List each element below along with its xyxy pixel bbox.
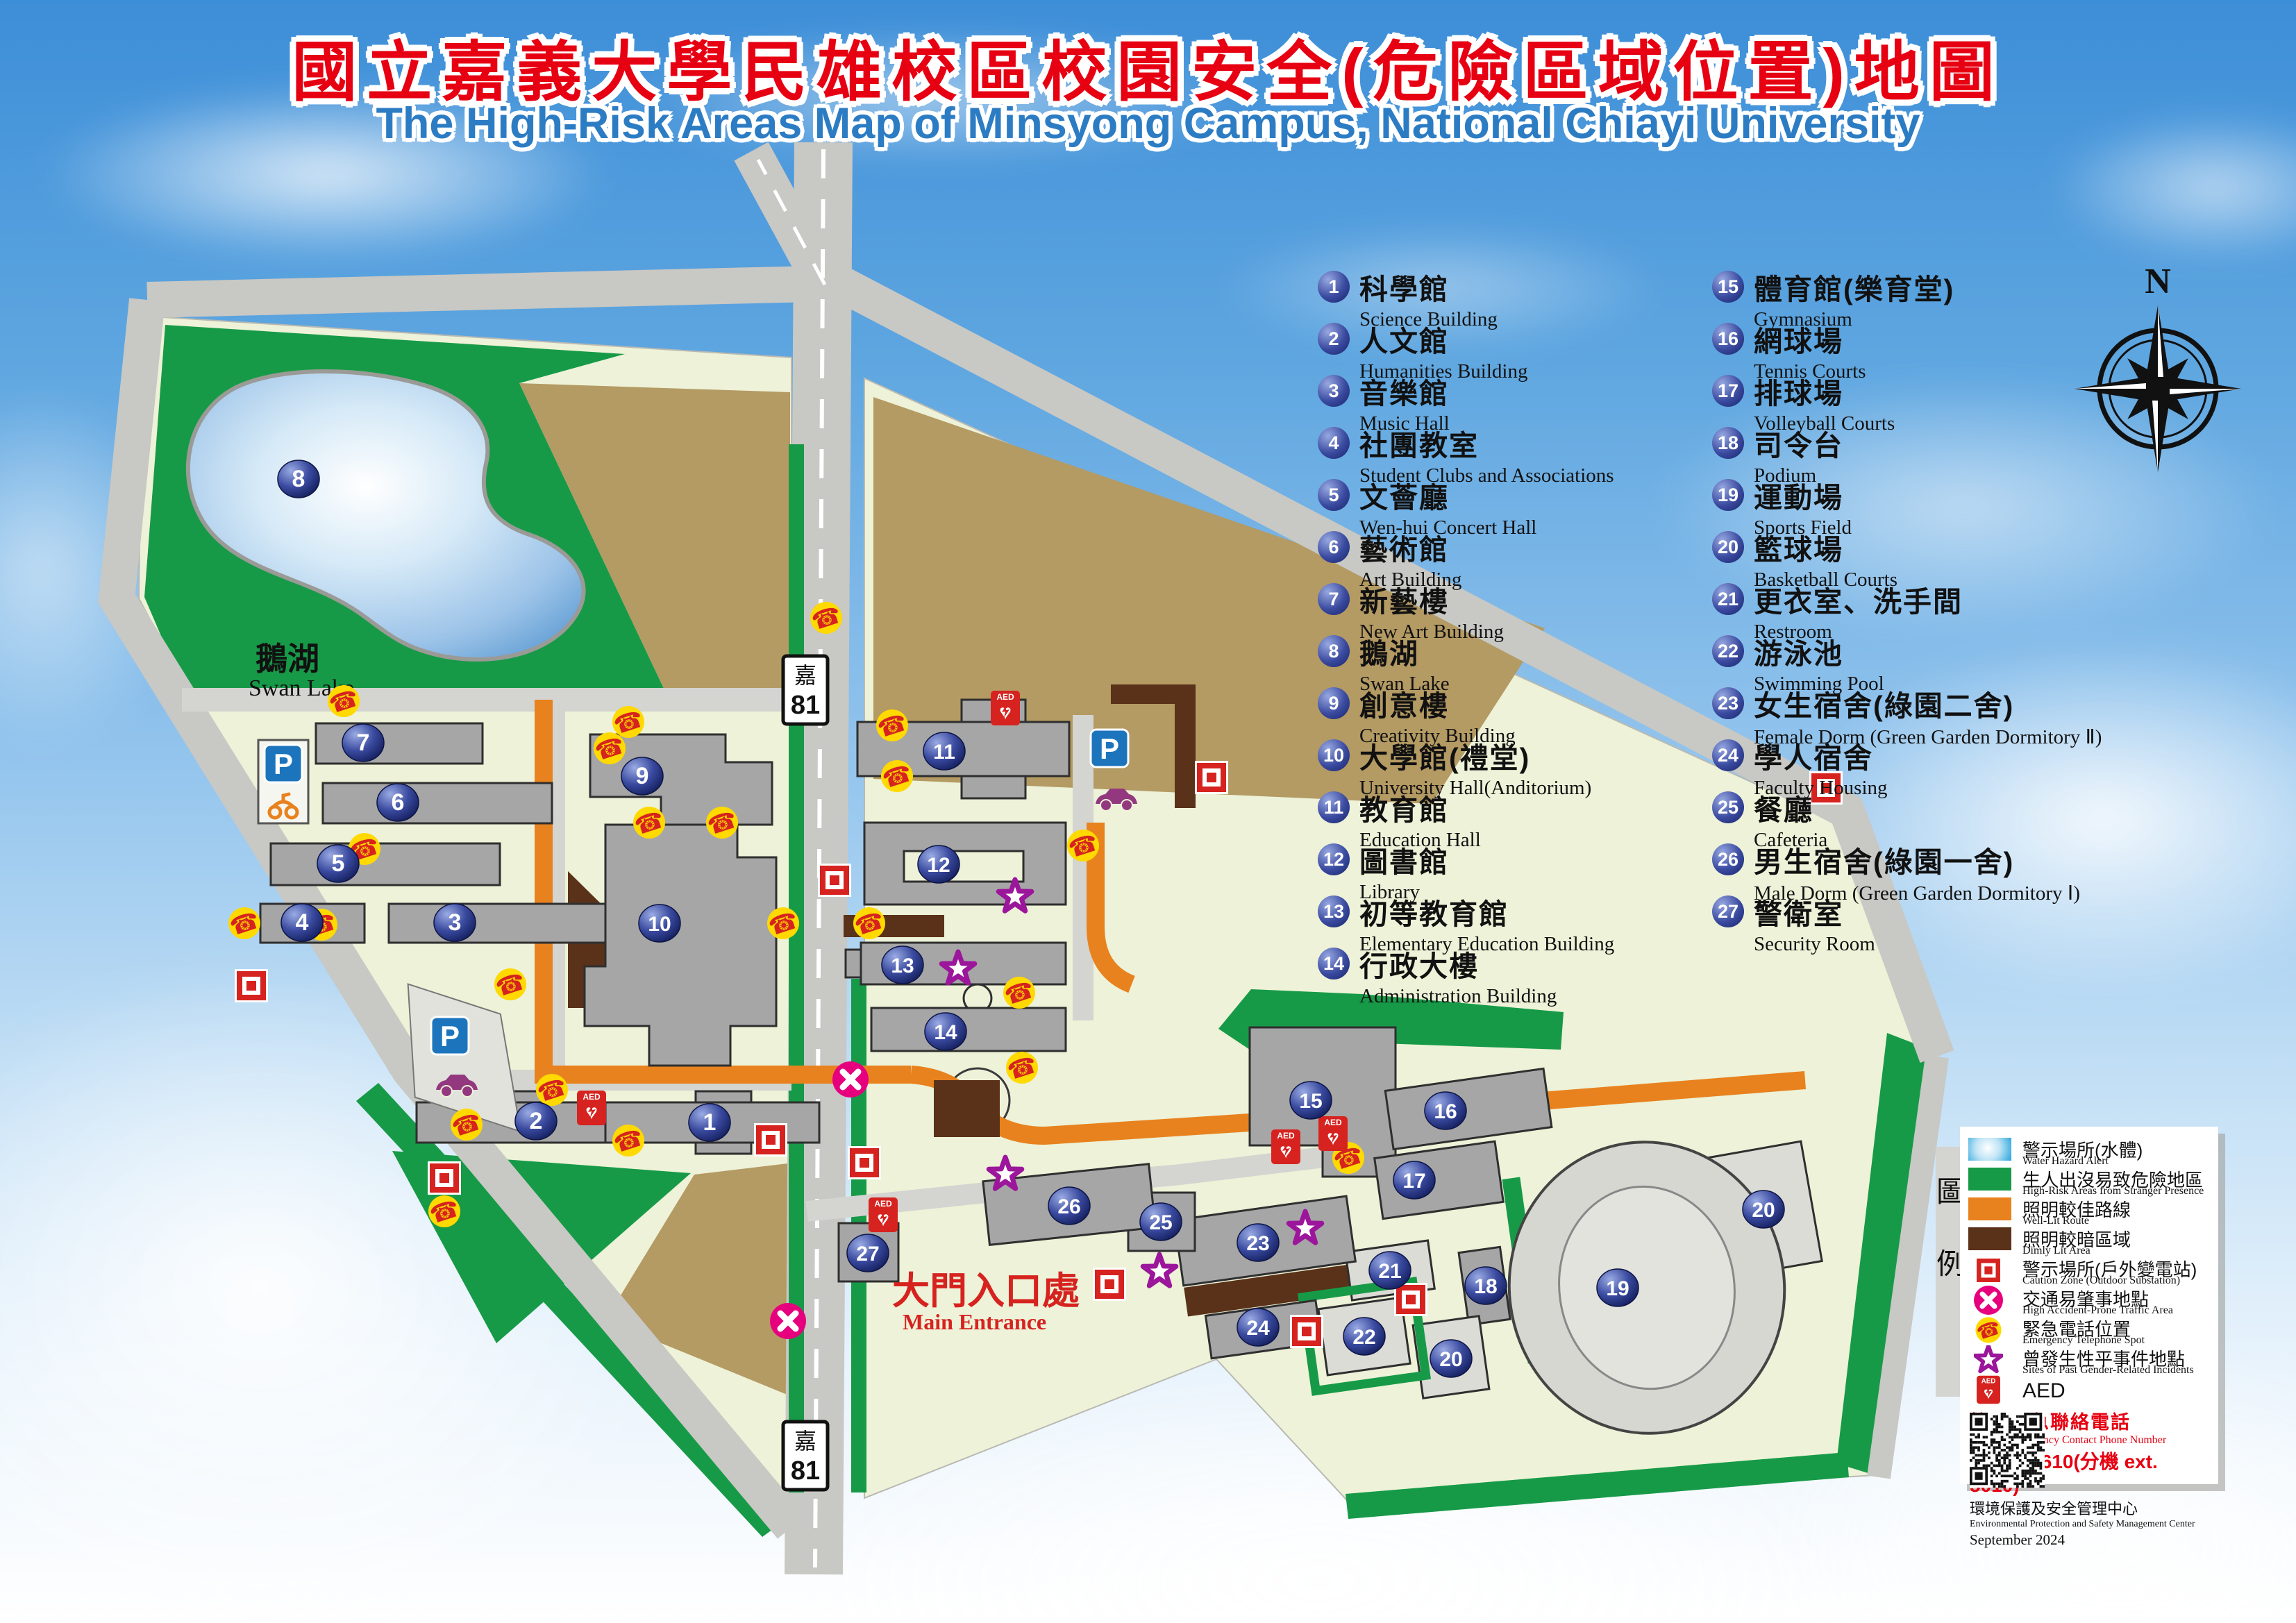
svg-text:4: 4	[296, 909, 309, 936]
main-entrance-label-zh: 大門入口處	[892, 1270, 1080, 1312]
list-number-badge: 3	[1318, 375, 1350, 407]
building-name-zh: 創意樓	[1359, 690, 1449, 722]
svg-text:2: 2	[530, 1108, 543, 1134]
building-name-zh: 大學館(禮堂)	[1359, 742, 1530, 774]
aed-icon: AED♥	[1318, 1116, 1348, 1151]
list-number-badge: 27	[1712, 895, 1744, 927]
svg-text:16: 16	[1434, 1100, 1457, 1123]
map-badge-21: 21	[1369, 1252, 1411, 1289]
svg-text:23: 23	[1246, 1232, 1269, 1255]
substation-icon	[1195, 761, 1228, 794]
building-name-zh: 藝術館	[1359, 534, 1449, 566]
svg-text:AED: AED	[874, 1199, 892, 1209]
parking-sign-icon: P	[1091, 730, 1128, 767]
svg-text:14: 14	[934, 1021, 957, 1044]
building-name-zh: 社團教室	[1359, 430, 1479, 462]
list-number-badge: 5	[1318, 479, 1350, 511]
list-number-badge: 7	[1318, 583, 1350, 615]
map-badge-18: 18	[1465, 1267, 1507, 1304]
aed-icon: AED♥	[1271, 1129, 1300, 1164]
building-name-zh: 新藝樓	[1359, 586, 1449, 618]
map-badge-27: 27	[847, 1234, 889, 1272]
svg-text:12: 12	[927, 854, 950, 877]
svg-text:P: P	[274, 748, 293, 780]
aed-icon: AED♥	[577, 1091, 606, 1125]
green-swatch-icon	[1968, 1168, 2011, 1191]
map-badge-4: 4	[281, 904, 323, 941]
building-name-zh: 警衛室	[1754, 898, 1843, 930]
svg-text:19: 19	[1606, 1277, 1629, 1300]
svg-text:AED: AED	[583, 1092, 601, 1102]
svg-text:☎: ☎	[226, 907, 262, 941]
building-name-zh: 司令台	[1754, 430, 1843, 462]
svg-text:1: 1	[703, 1109, 717, 1136]
legend-label-en: Sites of Past Gender-Related Incidents	[2022, 1364, 2194, 1377]
building-name-zh: 餐廳	[1754, 794, 1813, 826]
list-number-badge: 16	[1712, 323, 1744, 355]
list-number-badge: 19	[1712, 479, 1744, 511]
building-name-zh: 排球場	[1754, 378, 1843, 410]
building-name-zh: 更衣室、洗手間	[1754, 586, 1963, 618]
map-badge-14: 14	[925, 1013, 966, 1050]
svg-text:11: 11	[933, 741, 955, 764]
map-badge-26: 26	[1048, 1187, 1090, 1225]
building-name-zh: 圖書館	[1359, 846, 1449, 878]
svg-text:10: 10	[648, 913, 671, 936]
list-number-badge: 4	[1318, 427, 1350, 459]
svg-text:17: 17	[1402, 1170, 1425, 1193]
svg-text:9: 9	[636, 763, 649, 789]
building-name-zh: 初等教育館	[1359, 898, 1509, 930]
svg-text:P: P	[1100, 732, 1119, 765]
map-badge-17: 17	[1393, 1161, 1435, 1199]
substation-icon	[1093, 1268, 1126, 1301]
svg-text:8: 8	[292, 466, 305, 492]
building-name-zh: 文薈廳	[1359, 482, 1449, 514]
list-number-badge: 26	[1712, 843, 1744, 875]
map-badge-9: 9	[621, 757, 663, 795]
substation-icon	[754, 1123, 787, 1157]
list-number-badge: 21	[1712, 583, 1744, 615]
substation-icon	[235, 969, 268, 1002]
svg-text:25: 25	[1149, 1211, 1172, 1234]
svg-text:5: 5	[332, 850, 345, 877]
list-number-badge: 11	[1318, 791, 1350, 823]
list-number-badge: 1	[1318, 271, 1350, 303]
map-badge-10: 10	[639, 905, 680, 942]
aed-icon: AED♥	[1977, 1376, 2000, 1404]
map-badge-22: 22	[1343, 1318, 1385, 1355]
list-number-badge: 22	[1712, 635, 1744, 667]
map-badge-3: 3	[434, 904, 476, 941]
svg-text:N: N	[2145, 262, 2171, 301]
substation-icon	[1975, 1257, 2002, 1284]
list-number-badge: 12	[1318, 843, 1350, 875]
svg-text:27: 27	[856, 1243, 879, 1265]
dim-area-roundabout	[934, 1080, 1000, 1137]
svg-text:26: 26	[1057, 1195, 1080, 1218]
svg-text:21: 21	[1378, 1260, 1401, 1283]
building-list-item-27: 27警衛室Security Room	[1712, 891, 1875, 956]
star-icon	[1975, 1346, 2002, 1372]
list-number-badge: 6	[1318, 531, 1350, 563]
traffic-icon	[1974, 1286, 2003, 1315]
map-badge-5: 5	[317, 845, 359, 882]
svg-text:☎: ☎	[1974, 1316, 2003, 1344]
list-number-badge: 15	[1712, 271, 1744, 303]
parking-sign-icon: P	[431, 1017, 469, 1054]
substation-icon	[1394, 1283, 1427, 1316]
map-badge-1: 1	[689, 1104, 730, 1141]
list-number-badge: 20	[1712, 531, 1744, 563]
map-badge-20: 20	[1743, 1191, 1784, 1228]
svg-text:P: P	[440, 1020, 460, 1052]
page-subtitle: The High-Risk Areas Map of Minsyong Camp…	[0, 99, 2296, 149]
map-badge-2: 2	[515, 1102, 557, 1140]
list-number-badge: 18	[1712, 427, 1744, 459]
map-badge-6: 6	[377, 784, 419, 821]
map-badge-25: 25	[1140, 1203, 1182, 1241]
svg-text:AED: AED	[996, 692, 1014, 702]
phone-icon: ☎	[226, 907, 262, 941]
map-badge-24: 24	[1237, 1309, 1279, 1346]
map-badge-15: 15	[1290, 1082, 1332, 1119]
map-badge-13: 13	[882, 946, 923, 984]
contact-dept-en: Environmental Protection and Safety Mana…	[1970, 1519, 2209, 1530]
dim-area-ne-2	[1175, 684, 1196, 808]
building-name-zh: 籃球場	[1754, 534, 1843, 566]
svg-text:7: 7	[357, 730, 370, 756]
traffic-icon	[832, 1061, 869, 1098]
list-number-badge: 25	[1712, 791, 1744, 823]
list-number-badge: 13	[1318, 895, 1350, 927]
building-name-zh: 鵝湖	[1359, 638, 1419, 670]
road-sign-bottom: 嘉 81	[783, 1422, 828, 1490]
building-name-zh: 教育館	[1359, 794, 1449, 826]
svg-text:81: 81	[791, 1456, 820, 1486]
building-list-item-14: 14行政大樓Administration Building	[1318, 943, 1557, 1008]
map-badge-19: 19	[1597, 1269, 1639, 1306]
road-sign-top: 嘉 81	[783, 656, 828, 724]
substation-icon	[848, 1146, 881, 1179]
poster: 嘉 81 嘉 81 鵝湖 Swan Lake 大門入口處 Main Entran…	[0, 0, 2296, 1623]
svg-text:15: 15	[1299, 1090, 1322, 1113]
building-name-zh: 人文館	[1359, 326, 1449, 358]
svg-text:22: 22	[1352, 1326, 1375, 1349]
building-name-zh: 科學館	[1359, 274, 1449, 305]
parking-sign-icon: P	[265, 745, 302, 782]
contact-date: September 2024	[1970, 1531, 2209, 1549]
svg-text:AED: AED	[1324, 1118, 1342, 1127]
legend-contact: 校區緊急聯絡電話 Campus Emergency Contact Phone …	[1970, 1407, 2209, 1549]
map-badge-16: 16	[1425, 1092, 1466, 1129]
svg-text:20: 20	[1439, 1348, 1462, 1371]
svg-text:24: 24	[1246, 1317, 1270, 1340]
building-name-en: Administration Building	[1359, 985, 1557, 1008]
traffic-icon	[770, 1303, 806, 1339]
map-badge-20: 20	[1430, 1340, 1472, 1377]
phone-icon: ☎	[1974, 1316, 2003, 1344]
list-number-badge: 17	[1712, 375, 1744, 407]
map-badge-7: 7	[342, 724, 384, 762]
building-name-zh: 體育館(樂育堂)	[1754, 274, 1954, 305]
water-swatch-icon	[1968, 1138, 2011, 1161]
list-number-badge: 14	[1318, 948, 1350, 979]
aed-icon: AED♥	[869, 1197, 898, 1232]
building-name-zh: 行政大樓	[1359, 950, 1479, 982]
main-entrance-label-en: Main Entrance	[903, 1309, 1046, 1334]
contact-dept-zh: 環境保護及安全管理中心	[1970, 1497, 2209, 1519]
svg-text:6: 6	[392, 789, 405, 816]
orange-swatch-icon	[1968, 1197, 2011, 1220]
map-badge-12: 12	[918, 846, 960, 883]
brown-swatch-icon	[1968, 1227, 2011, 1250]
building-name-zh: 學人宿舍	[1754, 742, 1873, 774]
building-name-zh: 網球場	[1754, 326, 1843, 358]
svg-text:3: 3	[449, 909, 462, 936]
building-name-zh: 音樂館	[1359, 378, 1449, 410]
building-name-zh: 運動場	[1754, 482, 1843, 514]
svg-text:20: 20	[1752, 1199, 1775, 1222]
list-number-badge: 10	[1318, 739, 1350, 771]
svg-text:AED: AED	[1277, 1131, 1295, 1141]
substation-icon	[818, 864, 851, 897]
legend-box: 警示場所(水體)Water Hazard Alert生人出沒易致危險地區High…	[1960, 1127, 2218, 1484]
legend-label-zh: AED	[2022, 1379, 2065, 1403]
building-name-zh: 男生宿舍(綠園一舍)	[1754, 846, 2014, 878]
map-badge-11: 11	[923, 732, 965, 770]
aed-icon: AED♥	[991, 691, 1020, 725]
swan-lake-label-zh: 鵝湖	[255, 641, 319, 677]
svg-text:13: 13	[891, 955, 914, 977]
building-name-zh: 女生宿舍(綠園二舍)	[1754, 690, 2014, 722]
map-badge-8: 8	[278, 460, 319, 498]
svg-text:嘉: 嘉	[794, 663, 816, 688]
list-number-badge: 24	[1712, 739, 1744, 771]
substation-icon	[1290, 1315, 1323, 1348]
list-number-badge: 9	[1318, 687, 1350, 719]
list-number-badge: 23	[1712, 687, 1744, 719]
building-name-en: Security Room	[1754, 933, 1875, 956]
svg-text:嘉: 嘉	[794, 1429, 816, 1454]
svg-text:81: 81	[791, 691, 820, 720]
road-top	[147, 283, 840, 300]
list-number-badge: 8	[1318, 635, 1350, 667]
building-name-zh: 游泳池	[1754, 638, 1843, 670]
compass-rose: N	[2075, 262, 2241, 472]
list-number-badge: 2	[1318, 323, 1350, 355]
qr-code	[1970, 1413, 2045, 1488]
map-badge-23: 23	[1237, 1224, 1279, 1261]
svg-text:18: 18	[1474, 1275, 1497, 1298]
substation-icon	[428, 1161, 461, 1195]
